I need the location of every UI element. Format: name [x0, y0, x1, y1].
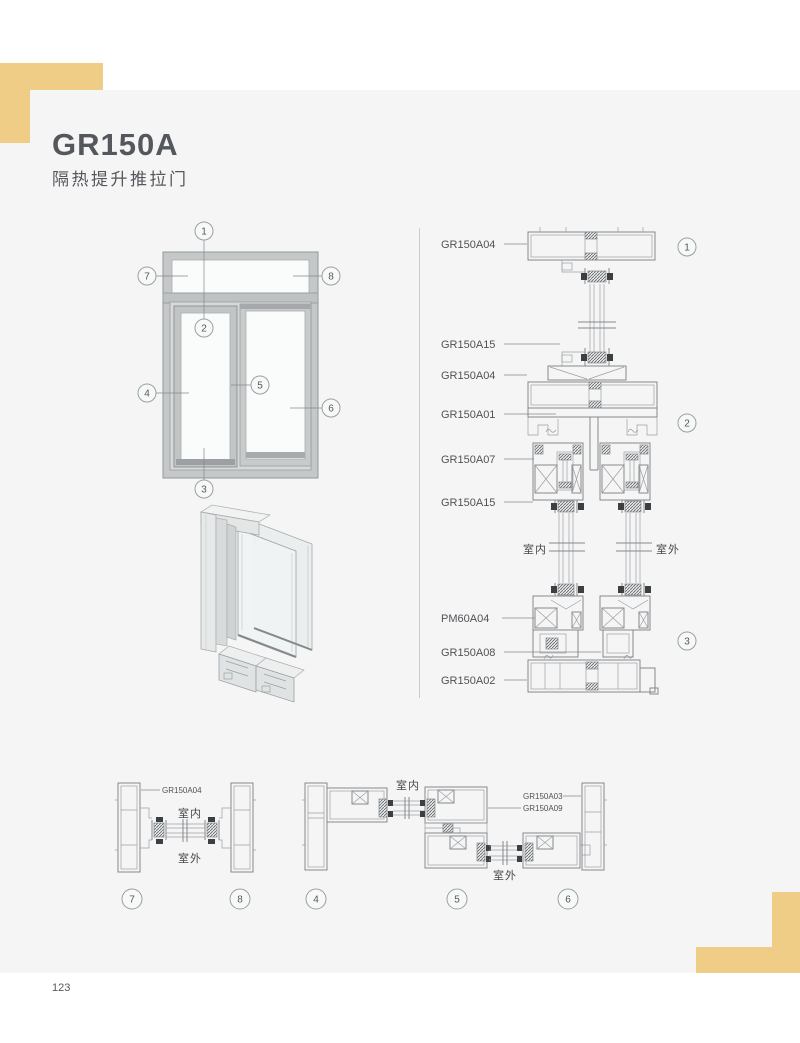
elevation-callout-4: 4: [138, 384, 156, 402]
vertical-section-callout-1: 1: [678, 238, 696, 256]
profile-label: GR150A03: [523, 792, 563, 801]
outdoor-label: 室外: [656, 542, 680, 556]
horizontal-section-frame: GR150A04 室内 室外 7 8: [115, 783, 256, 909]
vertical-section-labels: GR150A04 GR150A15 GR150A04 GR150A01 GR15…: [441, 239, 680, 687]
horizontal-section-callout-5: 5: [447, 889, 467, 909]
vertical-section: GR150A04 GR150A15 GR150A04 GR150A01 GR15…: [420, 227, 697, 698]
callout-number: 2: [201, 324, 207, 335]
technical-drawings: 1 2 3 4 5 6 7 8: [0, 0, 800, 1043]
elevation-callout-2: 2: [195, 319, 213, 337]
elevation-callout-5: 5: [251, 376, 269, 394]
vertical-section-detail-2: [528, 382, 657, 630]
outdoor-label: 室外: [178, 851, 202, 865]
callout-number: 4: [144, 389, 150, 400]
profile-label: GR150A08: [441, 647, 495, 659]
callout-number: 5: [257, 381, 263, 392]
callout-number: 7: [129, 895, 135, 906]
elevation-callout-1: 1: [195, 222, 213, 240]
indoor-label: 室内: [396, 778, 420, 792]
elevation-callout-3: 3: [195, 480, 213, 498]
callout-number: 1: [684, 243, 690, 254]
profile-label: PM60A04: [441, 613, 489, 625]
callout-number: 8: [237, 895, 243, 906]
profile-label: GR150A04: [441, 239, 495, 251]
callout-number: 6: [328, 404, 334, 415]
callout-number: 8: [328, 272, 334, 283]
callout-number: 5: [454, 895, 460, 906]
profile-label: GR150A07: [441, 454, 495, 466]
horizontal-section-callout-7: 7: [122, 889, 142, 909]
profile-label: GR150A04: [441, 370, 495, 382]
profile-label: GR150A04: [162, 786, 202, 795]
callout-number: 3: [684, 637, 690, 648]
elevation-callout-7: 7: [138, 267, 156, 285]
profile-label: GR150A02: [441, 675, 495, 687]
elevation-callout-6: 6: [322, 399, 340, 417]
indoor-label: 室内: [178, 806, 202, 820]
vertical-section-callout-3: 3: [678, 632, 696, 650]
horizontal-section-callout-6: 6: [558, 889, 578, 909]
vertical-section-detail-1: [528, 227, 655, 380]
elevation-callout-8: 8: [322, 267, 340, 285]
catalog-page: { "page": { "title": "GR150A", "subtitle…: [0, 0, 800, 1043]
outdoor-label: 室外: [493, 868, 517, 882]
callout-number: 6: [565, 895, 571, 906]
horizontal-section-callout-8: 8: [230, 889, 250, 909]
profile-label: GR150A15: [441, 497, 495, 509]
callout-number: 2: [684, 419, 690, 430]
profile-label: GR150A15: [441, 339, 495, 351]
profile-label: GR150A09: [523, 804, 563, 813]
horizontal-section-callout-4: 4: [306, 889, 326, 909]
profile-3d-render: [201, 505, 312, 702]
indoor-label: 室内: [523, 542, 547, 556]
callout-number: 7: [144, 272, 150, 283]
vertical-section-detail-3: [528, 630, 658, 694]
elevation-diagram: 1 2 3 4 5 6 7 8: [138, 222, 340, 498]
callout-number: 3: [201, 485, 207, 496]
horizontal-section-sash: GR150A03 GR150A09 室内 室外 4 5 6: [302, 778, 607, 909]
callout-number: 4: [313, 895, 319, 906]
profile-label: GR150A01: [441, 409, 495, 421]
callout-number: 1: [201, 227, 207, 238]
vertical-section-callout-2: 2: [678, 414, 696, 432]
